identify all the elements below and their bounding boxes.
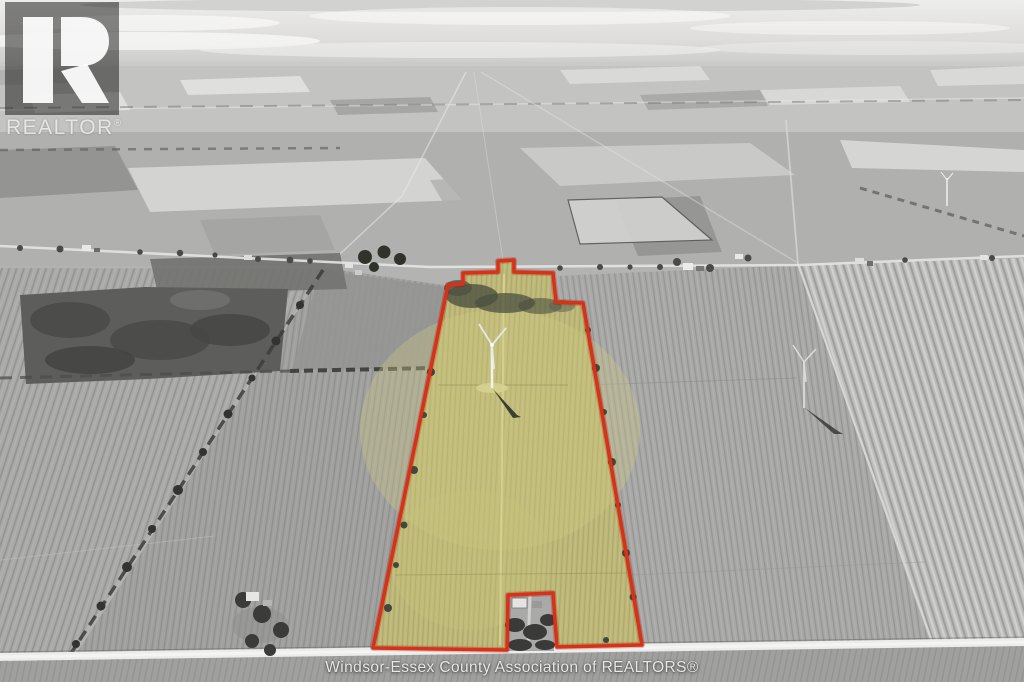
excluded-homestead [505, 594, 556, 651]
association-watermark: Windsor-Essex County Association of REAL… [0, 659, 1024, 677]
sky-band [0, 0, 1024, 71]
aerial-listing-photo: REALTOR® Windsor-Essex County Associatio… [0, 0, 1024, 682]
distant-fields [0, 66, 1024, 132]
aerial-farmland-scene [0, 0, 1024, 682]
